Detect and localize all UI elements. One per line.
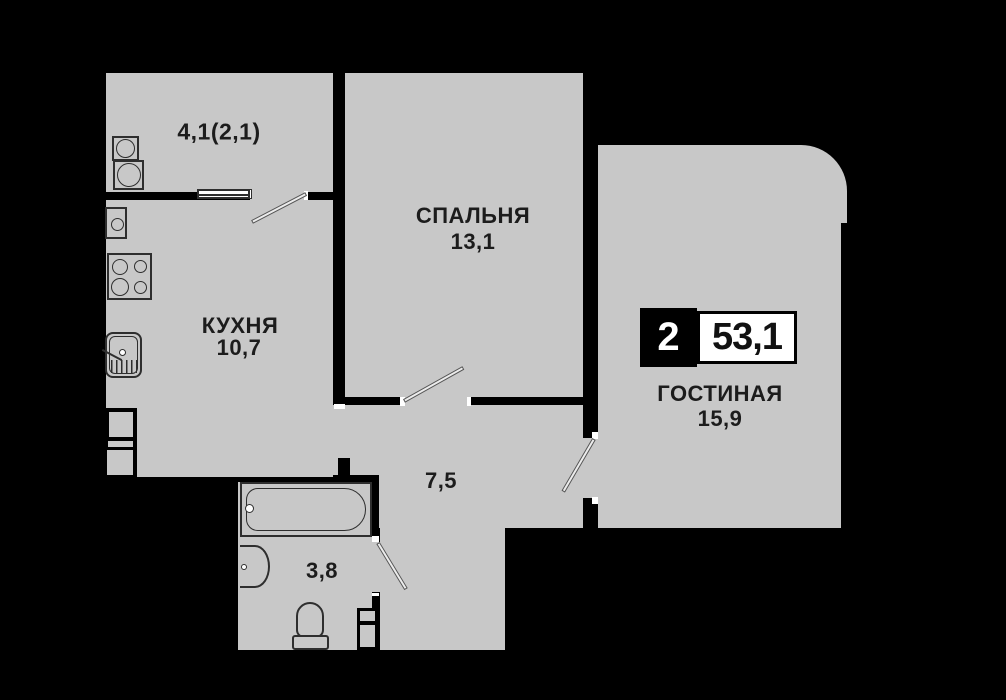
floor-plan: 4,1(2,1) СПАЛЬНЯ 13,1 КУХНЯ 10,7 ГОСТИНА… <box>0 0 1006 700</box>
total-area-badge: 53,1 <box>697 311 797 364</box>
burner <box>134 260 147 273</box>
bathtub-icon <box>240 482 372 537</box>
bathroom-ventilation-shaft-icon <box>357 608 379 650</box>
bathtub-basin <box>246 488 366 531</box>
bathroom-door-post-top <box>372 536 379 542</box>
hallway-floor-lower <box>380 528 505 650</box>
shaft-cell <box>107 450 133 475</box>
burner <box>111 278 129 296</box>
water-heater-icon <box>105 207 127 239</box>
washer-drum <box>116 139 135 158</box>
shaft-cell <box>109 412 133 437</box>
living-door-post-bottom <box>592 497 598 504</box>
bathroom-area-label: 3,8 <box>306 558 338 584</box>
shaft-cell <box>108 441 133 447</box>
balcony-window-pane <box>199 194 248 196</box>
heater-dial <box>111 218 124 231</box>
hallway-floor-upper <box>333 405 583 475</box>
kitchen-wall-end-post <box>334 404 345 409</box>
stove-icon <box>107 253 152 300</box>
burner <box>134 281 147 294</box>
kitchen-area-label: 10,7 <box>217 335 262 361</box>
sink-faucet <box>119 349 126 356</box>
stacked-washer-icon <box>112 136 139 161</box>
kitchen-ventilation-shaft-icon <box>105 408 137 477</box>
toilet-icon-bowl <box>296 602 324 638</box>
kitchen-sink-icon <box>105 332 142 378</box>
bedroom-area-label: 13,1 <box>451 229 496 255</box>
hallway-area-label: 7,5 <box>425 468 457 494</box>
bathroom-door-post-bottom <box>372 593 379 596</box>
balcony-area-label: 4,1(2,1) <box>177 119 260 146</box>
balcony-window <box>197 189 250 199</box>
washbasin-faucet <box>241 564 247 570</box>
living-room-floor-top <box>598 145 847 223</box>
toilet-icon-tank <box>292 635 329 650</box>
burner <box>112 259 128 275</box>
shaft-cell <box>360 611 375 621</box>
living-area-label: 15,9 <box>698 406 743 432</box>
dryer-drum <box>117 163 141 187</box>
stacked-dryer-icon <box>113 160 144 190</box>
bathtub-faucet <box>245 504 254 513</box>
rooms-count-badge: 2 <box>640 308 697 367</box>
bathroom-niche-wall-stub <box>338 458 350 477</box>
sink-drainboard <box>111 360 137 373</box>
bedroom-name-label: СПАЛЬНЯ <box>416 203 530 229</box>
hallway-floor-mid <box>379 475 583 528</box>
bathtub-faucet-bar <box>240 501 242 517</box>
living-name-label: ГОСТИНАЯ <box>657 381 782 407</box>
living-room-floor-bottom <box>598 223 841 528</box>
bedroom-door-post-right <box>467 397 471 406</box>
shaft-cell <box>360 625 375 647</box>
washbasin-icon <box>240 545 270 588</box>
apartment-summary-badge: 2 53,1 <box>640 308 797 367</box>
